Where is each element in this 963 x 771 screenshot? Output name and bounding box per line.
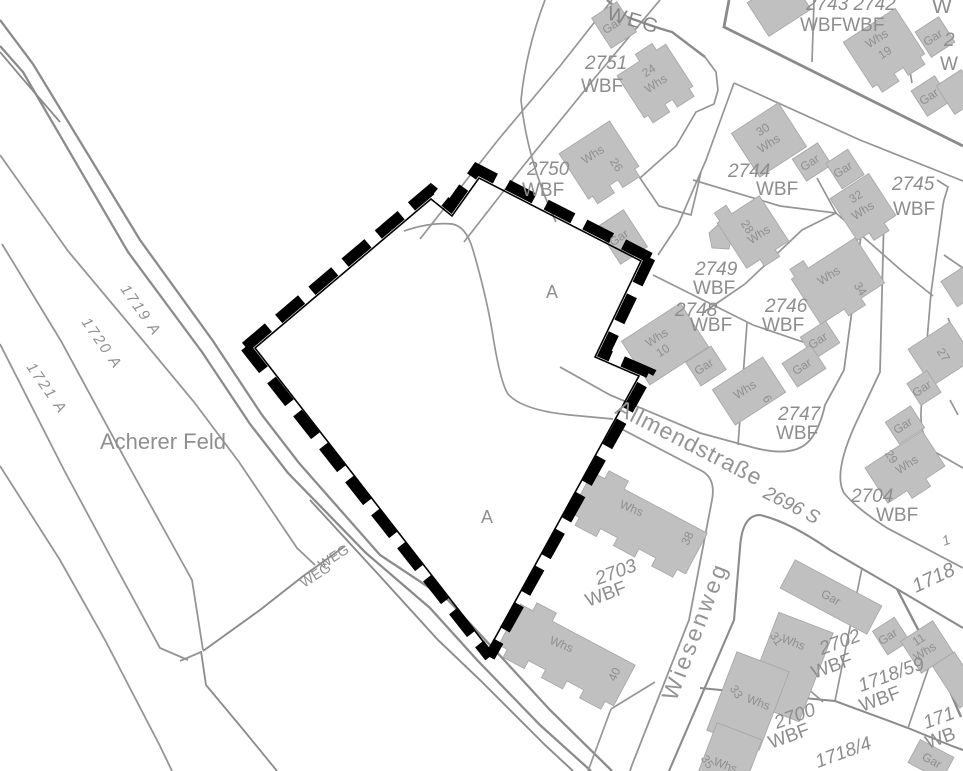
svg-text:WBF: WBF (690, 315, 732, 336)
svg-text:WBF: WBF (893, 199, 935, 220)
svg-text:2704: 2704 (850, 486, 893, 507)
svg-text:A: A (546, 282, 558, 302)
svg-text:2746: 2746 (764, 296, 808, 317)
svg-text:2743 2742: 2743 2742 (805, 0, 896, 15)
svg-text:2745: 2745 (891, 174, 935, 195)
svg-text:WBF: WBF (522, 180, 564, 201)
svg-text:WBF: WBF (762, 315, 804, 336)
svg-text:W: W (940, 54, 958, 75)
svg-text:2749: 2749 (694, 259, 738, 280)
svg-text:W: W (932, 0, 952, 18)
svg-text:WBF: WBF (776, 423, 818, 444)
svg-text:2750: 2750 (526, 159, 570, 180)
svg-text:WBF: WBF (876, 505, 918, 526)
svg-text:2747: 2747 (777, 404, 822, 425)
svg-text:2751: 2751 (584, 53, 627, 74)
svg-text:A: A (481, 507, 493, 527)
svg-text:WBF: WBF (756, 179, 798, 200)
svg-text:Acherer Feld: Acherer Feld (100, 429, 226, 454)
svg-text:2: 2 (943, 30, 955, 51)
svg-text:WBF: WBF (581, 76, 623, 97)
svg-text:WBF: WBF (693, 278, 735, 299)
